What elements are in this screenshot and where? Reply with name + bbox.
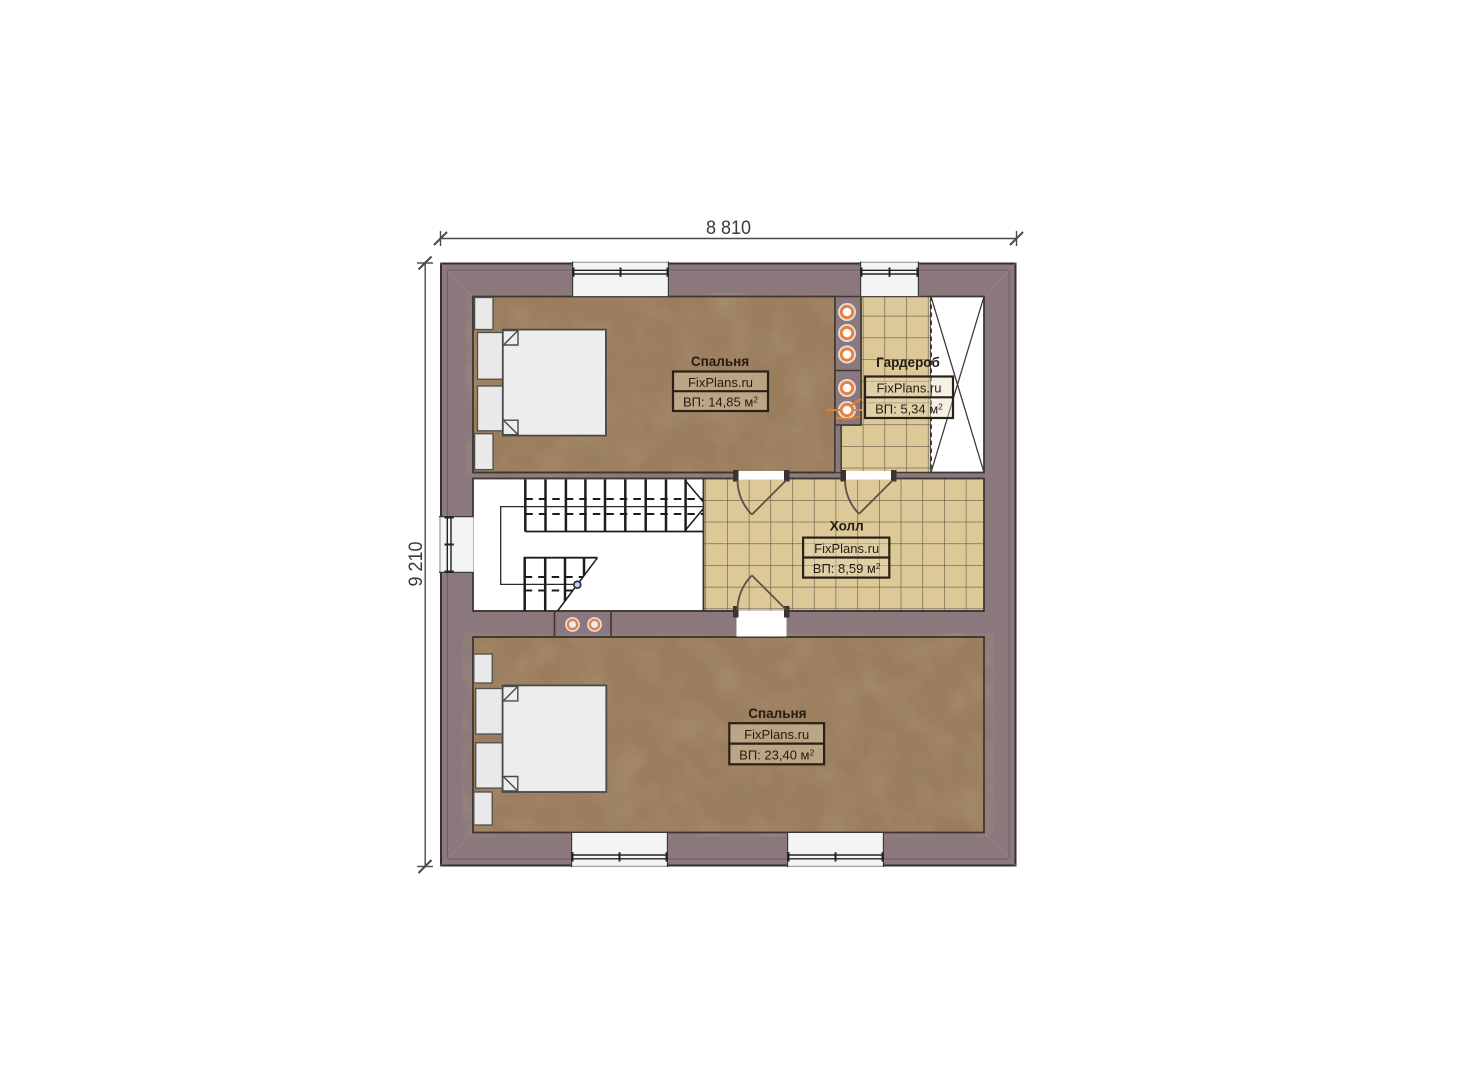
- svg-text:9 210: 9 210: [405, 541, 427, 586]
- svg-text:FixPlans.ru: FixPlans.ru: [876, 381, 941, 396]
- svg-text:ВП: 14,85 м2: ВП: 14,85 м2: [683, 394, 758, 409]
- svg-text:ВП: 8,59 м2: ВП: 8,59 м2: [813, 561, 881, 576]
- svg-text:Спальня: Спальня: [748, 706, 806, 721]
- svg-text:ВП: 23,40 м2: ВП: 23,40 м2: [739, 747, 814, 762]
- svg-text:FixPlans.ru: FixPlans.ru: [688, 375, 753, 390]
- svg-text:FixPlans.ru: FixPlans.ru: [744, 727, 809, 742]
- svg-text:ВП: 5,34 м2: ВП: 5,34 м2: [875, 401, 943, 416]
- svg-text:FixPlans.ru: FixPlans.ru: [814, 541, 879, 556]
- svg-text:Спальня: Спальня: [691, 354, 749, 369]
- svg-text:Гардероб: Гардероб: [876, 355, 940, 370]
- svg-text:8 810: 8 810: [706, 217, 751, 239]
- svg-text:Холл: Холл: [830, 519, 864, 534]
